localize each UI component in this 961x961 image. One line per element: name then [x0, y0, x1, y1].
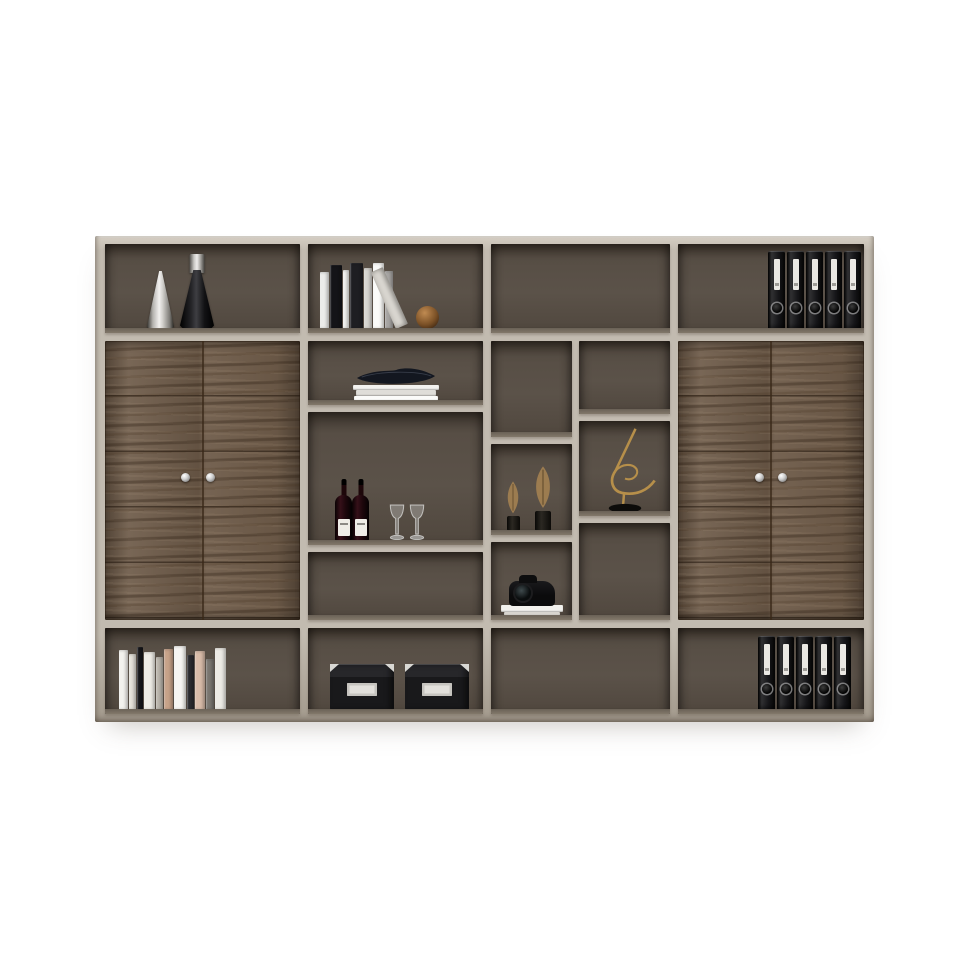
vase-body: [147, 271, 174, 329]
binder-label: [783, 644, 789, 675]
binder: [787, 251, 804, 329]
book-spine: [364, 268, 372, 329]
camera-on-books: [501, 581, 563, 616]
door-seam: [770, 341, 772, 620]
box-label-plate: [422, 683, 452, 696]
door-knob[interactable]: [206, 473, 215, 482]
binder: [844, 251, 861, 329]
binder: [806, 251, 823, 329]
binder-hole: [829, 303, 839, 313]
binder-label: [802, 644, 808, 675]
metal-corner: [405, 664, 414, 672]
left-cabinet-doors[interactable]: [105, 341, 300, 620]
binder-label: [812, 259, 818, 290]
bottle-label: [338, 519, 350, 536]
camera: [509, 581, 555, 606]
compartment-leaf-sculptures: [491, 444, 572, 535]
binder-label: [840, 644, 846, 675]
book-spine: [156, 657, 163, 710]
compartment-bottom-1: [105, 628, 300, 714]
compartment-bottom-3: [491, 628, 670, 714]
compartment-bottom-2: [308, 628, 483, 714]
binder-label: [793, 259, 799, 290]
flat-book: [501, 605, 563, 612]
book-spine: [164, 649, 173, 710]
compartment-top-4: [678, 244, 864, 333]
binder-hole: [772, 303, 782, 313]
binder: [815, 636, 832, 710]
white-book-stack: [501, 605, 563, 616]
book-spine: [129, 654, 136, 710]
binder-row: [768, 251, 861, 329]
binder-hole: [810, 303, 820, 313]
binder-label: [831, 259, 837, 290]
book-spine: [137, 647, 143, 710]
binder-hole: [838, 684, 848, 694]
flat-book: [504, 612, 560, 616]
box-label-plate: [347, 683, 377, 696]
compartment-top-3: [491, 244, 670, 333]
binder-hole: [791, 303, 801, 313]
binder: [834, 636, 851, 710]
compartment-bowl-shelf: [308, 341, 483, 405]
product-photo: [0, 0, 961, 961]
binder-hole: [800, 684, 810, 694]
binder: [768, 251, 785, 329]
metal-corner: [385, 664, 394, 672]
compartment-empty-right-top: [579, 341, 670, 414]
compartment-empty-right-bottom: [579, 523, 670, 620]
book-spine: [195, 651, 205, 710]
leaf-sculpture: [531, 465, 555, 531]
binder-label: [850, 259, 856, 290]
wine-bottle: [335, 479, 352, 541]
binder-hole: [819, 684, 829, 694]
binder: [796, 636, 813, 710]
binder: [777, 636, 794, 710]
black-cone-vase: [180, 254, 214, 329]
flat-book: [354, 396, 438, 401]
storage-box: [405, 664, 469, 710]
book-spine: [206, 659, 214, 710]
book-spine: [320, 272, 329, 329]
compartment-camera: [491, 542, 572, 620]
door-seam: [202, 341, 204, 620]
storage-box: [330, 664, 394, 710]
gold-dancer-sculpture: [589, 425, 661, 513]
door-knob[interactable]: [778, 473, 787, 482]
binder-hole: [848, 303, 858, 313]
metal-corner: [330, 664, 339, 672]
book-spine: [343, 270, 349, 329]
binder: [825, 251, 842, 329]
binder-hole: [781, 684, 791, 694]
compartment-dancer-sculpture: [579, 421, 670, 516]
book-spine: [215, 648, 226, 710]
wine-glass: [387, 504, 407, 541]
binder-hole: [762, 684, 772, 694]
bronze-sphere: [416, 306, 439, 329]
book-row: [119, 646, 226, 710]
book-spine: [330, 265, 342, 329]
door-knob[interactable]: [755, 473, 764, 482]
bowl-on-books: [353, 366, 439, 401]
book-spine: [174, 646, 186, 710]
wine-glass: [407, 504, 427, 541]
bookcase: [95, 236, 874, 722]
binder-label: [774, 259, 780, 290]
camera-lens: [515, 585, 531, 601]
right-cabinet-doors[interactable]: [678, 341, 864, 620]
binder-row: [758, 636, 851, 710]
compartment-empty-left-top: [491, 341, 572, 437]
book-spine: [119, 650, 128, 710]
door-knob[interactable]: [181, 473, 190, 482]
leaf-sculpture: [503, 480, 523, 531]
book-spine: [350, 263, 363, 329]
compartment-wine-shelf: [308, 412, 483, 545]
compartment-top-1: [105, 244, 300, 333]
vase-body: [180, 270, 214, 329]
compartment-bottom-4: [678, 628, 864, 714]
binder: [758, 636, 775, 710]
metal-corner: [460, 664, 469, 672]
book-spine: [144, 652, 155, 710]
compartment-top-2: [308, 244, 483, 333]
binder-label: [821, 644, 827, 675]
sculpture-base: [535, 511, 551, 531]
book-spine: [187, 655, 194, 710]
silver-cone-vase: [147, 271, 174, 329]
compartment-empty-center: [308, 552, 483, 620]
bottle-label: [355, 519, 367, 536]
wine-bottle: [352, 479, 369, 541]
binder-label: [764, 644, 770, 675]
sculpture-base: [507, 516, 520, 531]
white-book-stack: [353, 385, 439, 401]
